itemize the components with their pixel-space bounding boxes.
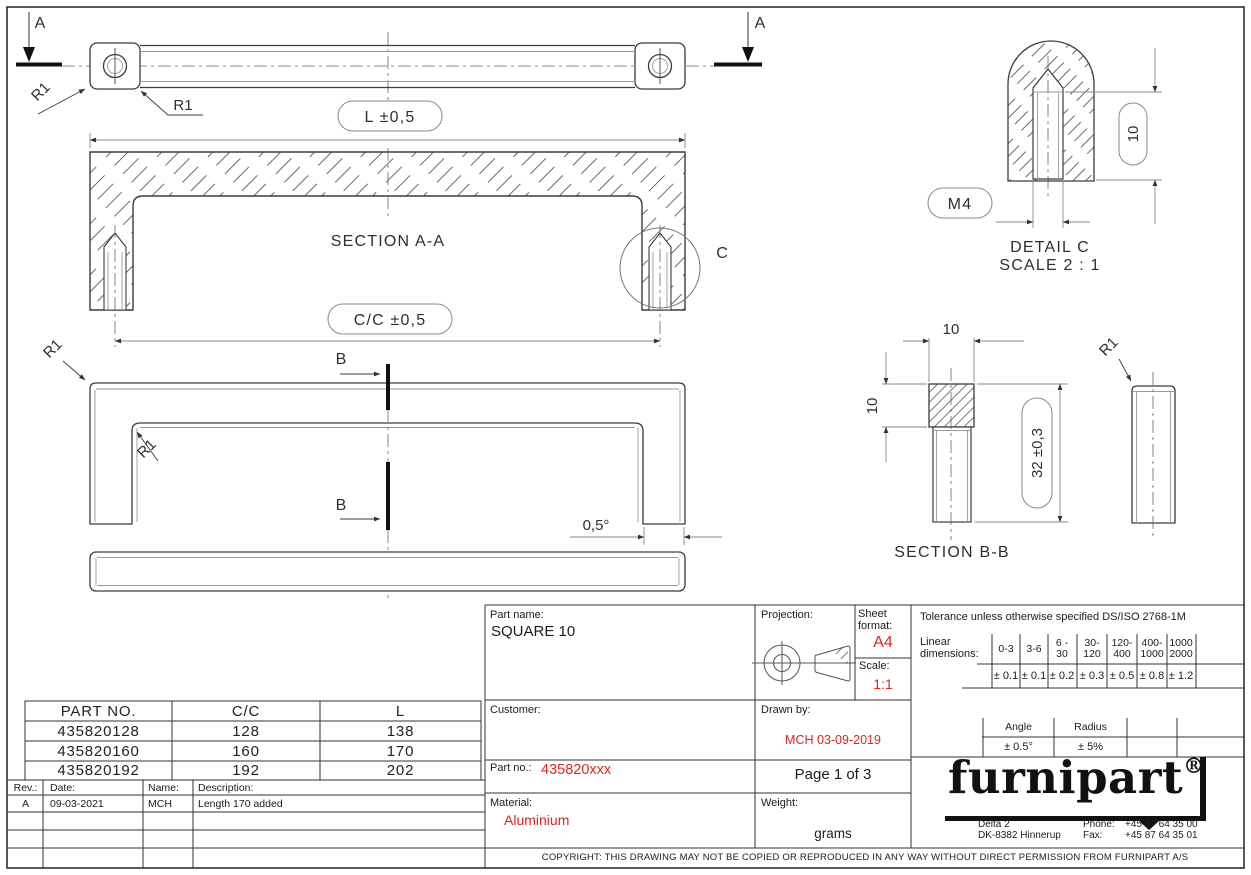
- tolerance-linear-label: Linear dimensions:: [920, 636, 979, 660]
- fillet-callout: R1: [28, 79, 85, 114]
- fillet-label: R1: [28, 79, 54, 105]
- part-table-cell: 202: [320, 762, 481, 779]
- section-bb-view: 10 10 32 ±0,3 R1 SECTION B-B: [864, 321, 1175, 561]
- rev-table-header: Description:: [198, 782, 253, 794]
- fillet-callout: R1: [1096, 334, 1131, 381]
- length-32-dimension: 32 ±0,3: [975, 384, 1068, 522]
- registered-mark: ®: [1183, 753, 1204, 778]
- angle-label: Angle: [983, 721, 1054, 733]
- part-table-cell: 435820128: [25, 723, 172, 740]
- tolerance-range: 1000 2000: [1161, 634, 1201, 664]
- section-a-letter: A: [35, 15, 46, 32]
- projection-label: Projection:: [761, 609, 813, 621]
- rev-table-cell: Length 170 added: [198, 798, 283, 810]
- detail-c-letter: C: [716, 245, 728, 262]
- part-no-value: 435820xxx: [541, 762, 611, 778]
- section-a-letter: A: [755, 15, 766, 32]
- cc-dim-text: C/C ±0,5: [354, 312, 427, 329]
- fillet-label: R1: [1096, 334, 1122, 360]
- sheet-format-label: Sheet format:: [858, 608, 904, 632]
- drawn-by-label: Drawn by:: [761, 704, 811, 716]
- bottom-view: [90, 552, 685, 591]
- weight-unit: grams: [755, 826, 911, 841]
- section-b-marker-bottom: B: [336, 462, 388, 530]
- part-no-label: Part no.:: [490, 762, 532, 774]
- scale-value: 1:1: [855, 676, 911, 692]
- detail-c-caption: DETAIL C: [1010, 239, 1090, 256]
- section-aa-view: SECTION A-A C C/C ±0,5: [90, 148, 728, 347]
- fax-label: Fax:: [1083, 830, 1102, 841]
- section-bb-caption: SECTION B-B: [894, 544, 1009, 561]
- scale-label: Scale:: [859, 660, 890, 672]
- copyright-note: COPYRIGHT: THIS DRAWING MAY NOT BE COPIE…: [488, 852, 1242, 863]
- cc-dimension: C/C ±0,5: [115, 304, 660, 341]
- drawn-by-value: MCH 03-09-2019: [755, 733, 911, 747]
- drawing-sheet: A A R1 R1 L ±0,5: [0, 0, 1251, 875]
- fillet-callout: R1: [40, 336, 85, 380]
- part-table-cell: 170: [320, 743, 481, 760]
- address-line-2: DK-8382 Hinnerup: [978, 830, 1061, 841]
- draft-angle-text: 0,5°: [583, 517, 610, 534]
- fillet-label: R1: [173, 97, 192, 114]
- rev-table-header: Name:: [148, 782, 179, 794]
- section-aa-caption: SECTION A-A: [331, 233, 446, 250]
- logo-name: furnipart: [948, 751, 1183, 804]
- rev-table-header: Rev.:: [8, 782, 43, 794]
- rev-table-header: Date:: [50, 782, 75, 794]
- width-dim-text: 10: [943, 321, 960, 338]
- address-line-1: Delta 2: [978, 819, 1010, 830]
- height-dim-text: 10: [864, 398, 881, 415]
- thread-dimension: M4: [928, 182, 1090, 228]
- part-table-cell: 435820192: [25, 762, 172, 779]
- rev-table-cell: A: [8, 798, 43, 810]
- part-table-cell: 128: [172, 723, 320, 740]
- length-dim-text: L ±0,5: [365, 109, 416, 126]
- section-a-marker-left: A: [16, 12, 62, 65]
- weight-label: Weight:: [761, 797, 798, 809]
- projection-symbol: [752, 641, 856, 685]
- part-table-header: C/C: [172, 703, 320, 720]
- furnipart-logo: furnipart®: [948, 752, 1204, 804]
- fillet-callout: R1: [134, 432, 160, 462]
- phone-label: Phone:: [1083, 819, 1115, 830]
- fax-value: +45 87 64 35 01: [1125, 830, 1198, 841]
- fillet-callout: R1: [141, 91, 203, 115]
- detail-c-view: 10 M4 DETAIL C SCALE 2 : 1: [928, 41, 1162, 274]
- section-b-letter: B: [336, 351, 347, 368]
- part-name-value: SQUARE 10: [491, 623, 575, 640]
- part-table-header: L: [320, 703, 481, 720]
- part-table-cell: 435820160: [25, 743, 172, 760]
- thread-depth-text: 10: [1125, 126, 1142, 143]
- section-b-letter: B: [336, 497, 347, 514]
- fillet-label: R1: [40, 336, 66, 362]
- part-table-header: PART NO.: [25, 703, 172, 720]
- tolerance-title: Tolerance unless otherwise specified DS/…: [920, 611, 1186, 623]
- page-info: Page 1 of 3: [755, 766, 911, 783]
- sheet-format-value: A4: [855, 634, 911, 652]
- part-table-cell: 192: [172, 762, 320, 779]
- detail-c-scale: SCALE 2 : 1: [999, 257, 1100, 274]
- top-view: A A R1 R1: [16, 12, 766, 115]
- rev-table-cell: 09-03-2021: [50, 798, 104, 810]
- part-table-cell: 138: [320, 723, 481, 740]
- material-label: Material:: [490, 797, 532, 809]
- phone-value: +45 87 64 35 00: [1125, 819, 1198, 830]
- thread-dim-text: M4: [948, 196, 973, 213]
- part-name-label: Part name:: [490, 609, 544, 621]
- dim-32-text: 32 ±0,3: [1029, 428, 1046, 478]
- rev-table-cell: MCH: [148, 798, 172, 810]
- material-value: Aluminium: [504, 812, 569, 828]
- radius-label: Radius: [1054, 721, 1127, 733]
- tolerance-value: ± 1.2: [1159, 665, 1203, 687]
- section-a-marker-right: A: [714, 12, 766, 65]
- customer-label: Customer:: [490, 704, 541, 716]
- part-table-cell: 160: [172, 743, 320, 760]
